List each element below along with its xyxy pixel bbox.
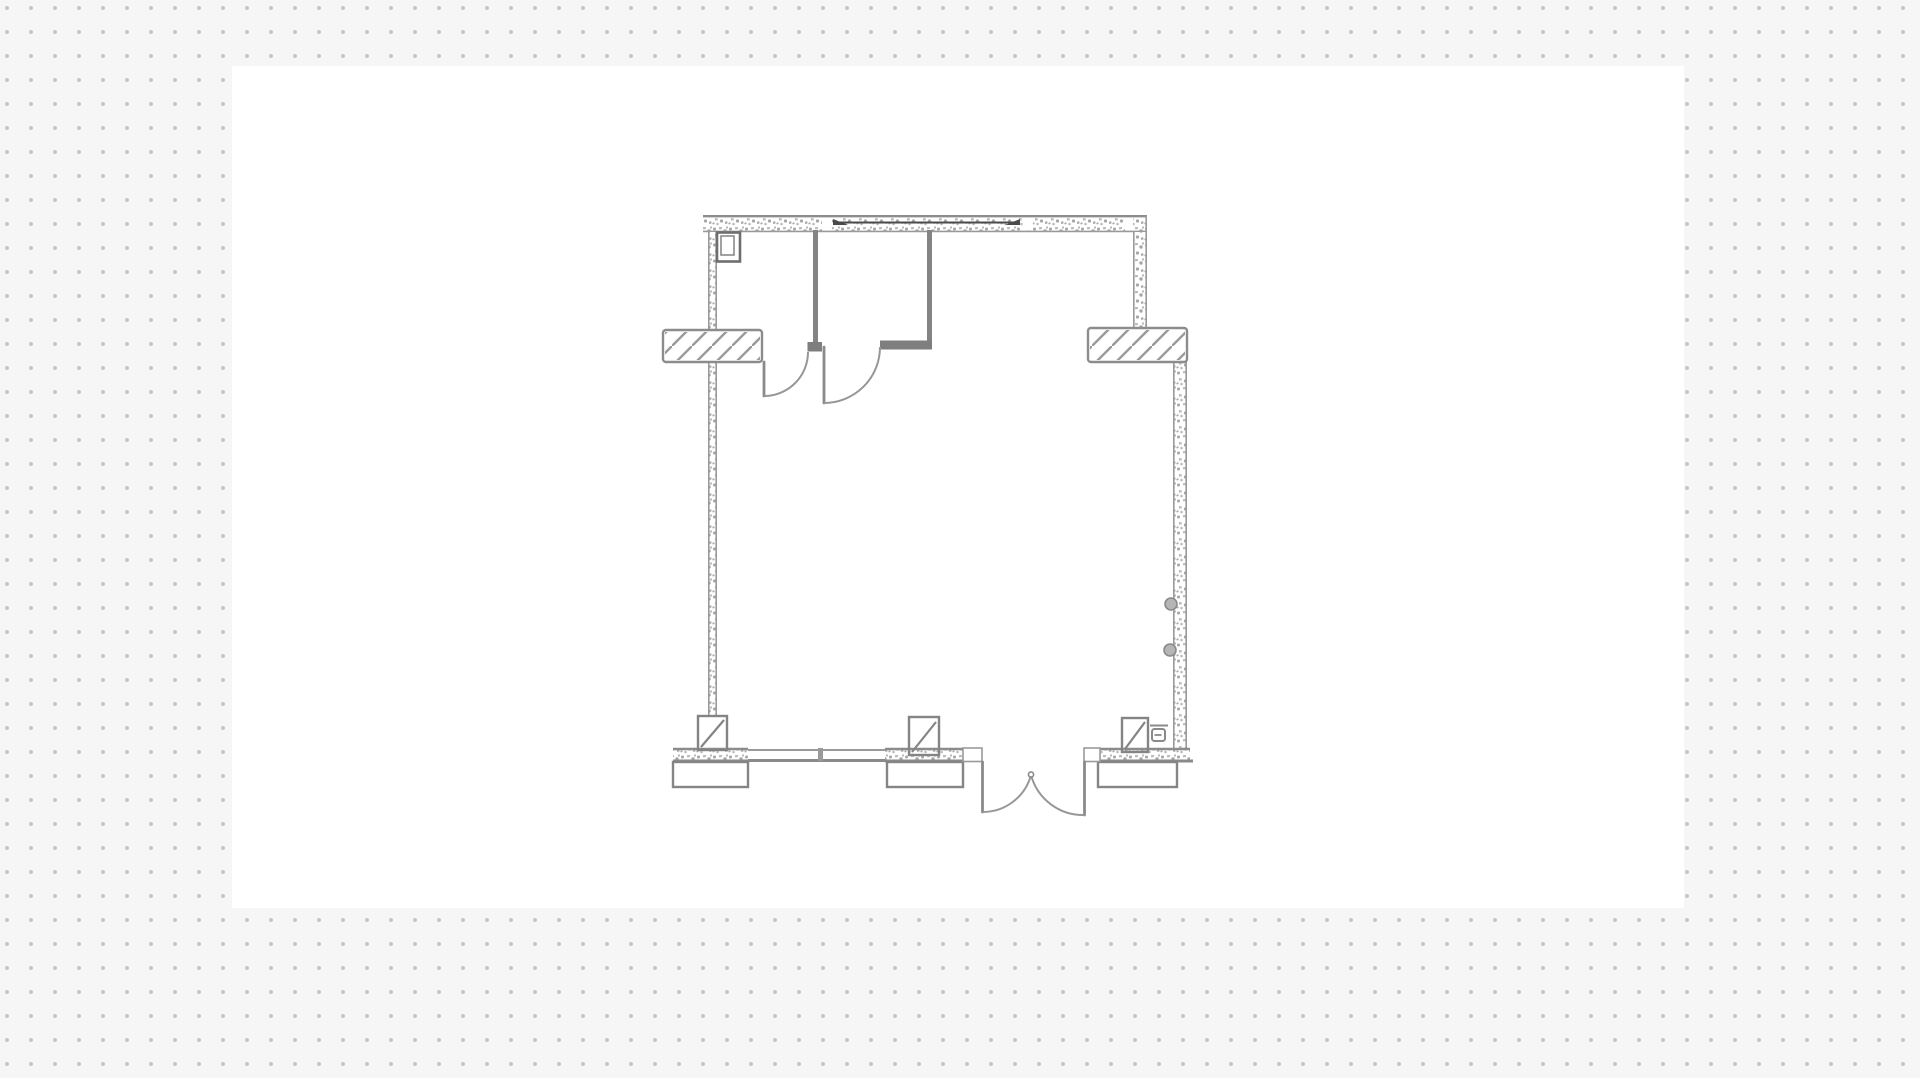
window-mullion: [818, 748, 823, 761]
right-exterior-wall-upper[interactable]: [1133, 216, 1147, 328]
top-exterior-wall[interactable]: [703, 215, 1147, 232]
footing-right[interactable]: [1098, 762, 1177, 787]
footing-middle[interactable]: [887, 762, 963, 787]
switch-symbol[interactable]: [1150, 726, 1168, 742]
window-jamb-gap: [1023, 218, 1033, 231]
left-window[interactable]: [663, 330, 762, 362]
window-jamb-gap: [822, 218, 832, 231]
door-jamb-left: [963, 748, 982, 762]
flue-box[interactable]: [717, 233, 740, 262]
interior-partition-left[interactable]: [808, 230, 823, 352]
footing-left[interactable]: [673, 762, 748, 787]
right-window[interactable]: [1088, 328, 1187, 362]
interior-partition-right[interactable]: [880, 230, 932, 350]
floor-plan-drawing: [232, 66, 1684, 908]
interior-door-left[interactable]: [764, 352, 808, 396]
door-meeting-node: [1028, 772, 1033, 777]
page-background: [0, 0, 1920, 1078]
stub-wall: [880, 341, 932, 350]
design-canvas[interactable]: [232, 66, 1684, 908]
right-exterior-wall-lower[interactable]: [1173, 362, 1187, 750]
left-exterior-wall[interactable]: [708, 232, 717, 716]
window-jamb-gap: [1125, 218, 1133, 231]
entry-double-door[interactable]: [963, 748, 1100, 815]
door-jamb-right: [1084, 748, 1100, 762]
bottom-wall-window[interactable]: [748, 748, 885, 761]
footings[interactable]: [673, 762, 1177, 787]
interior-door-right[interactable]: [824, 347, 880, 403]
partition-foot: [808, 342, 823, 352]
